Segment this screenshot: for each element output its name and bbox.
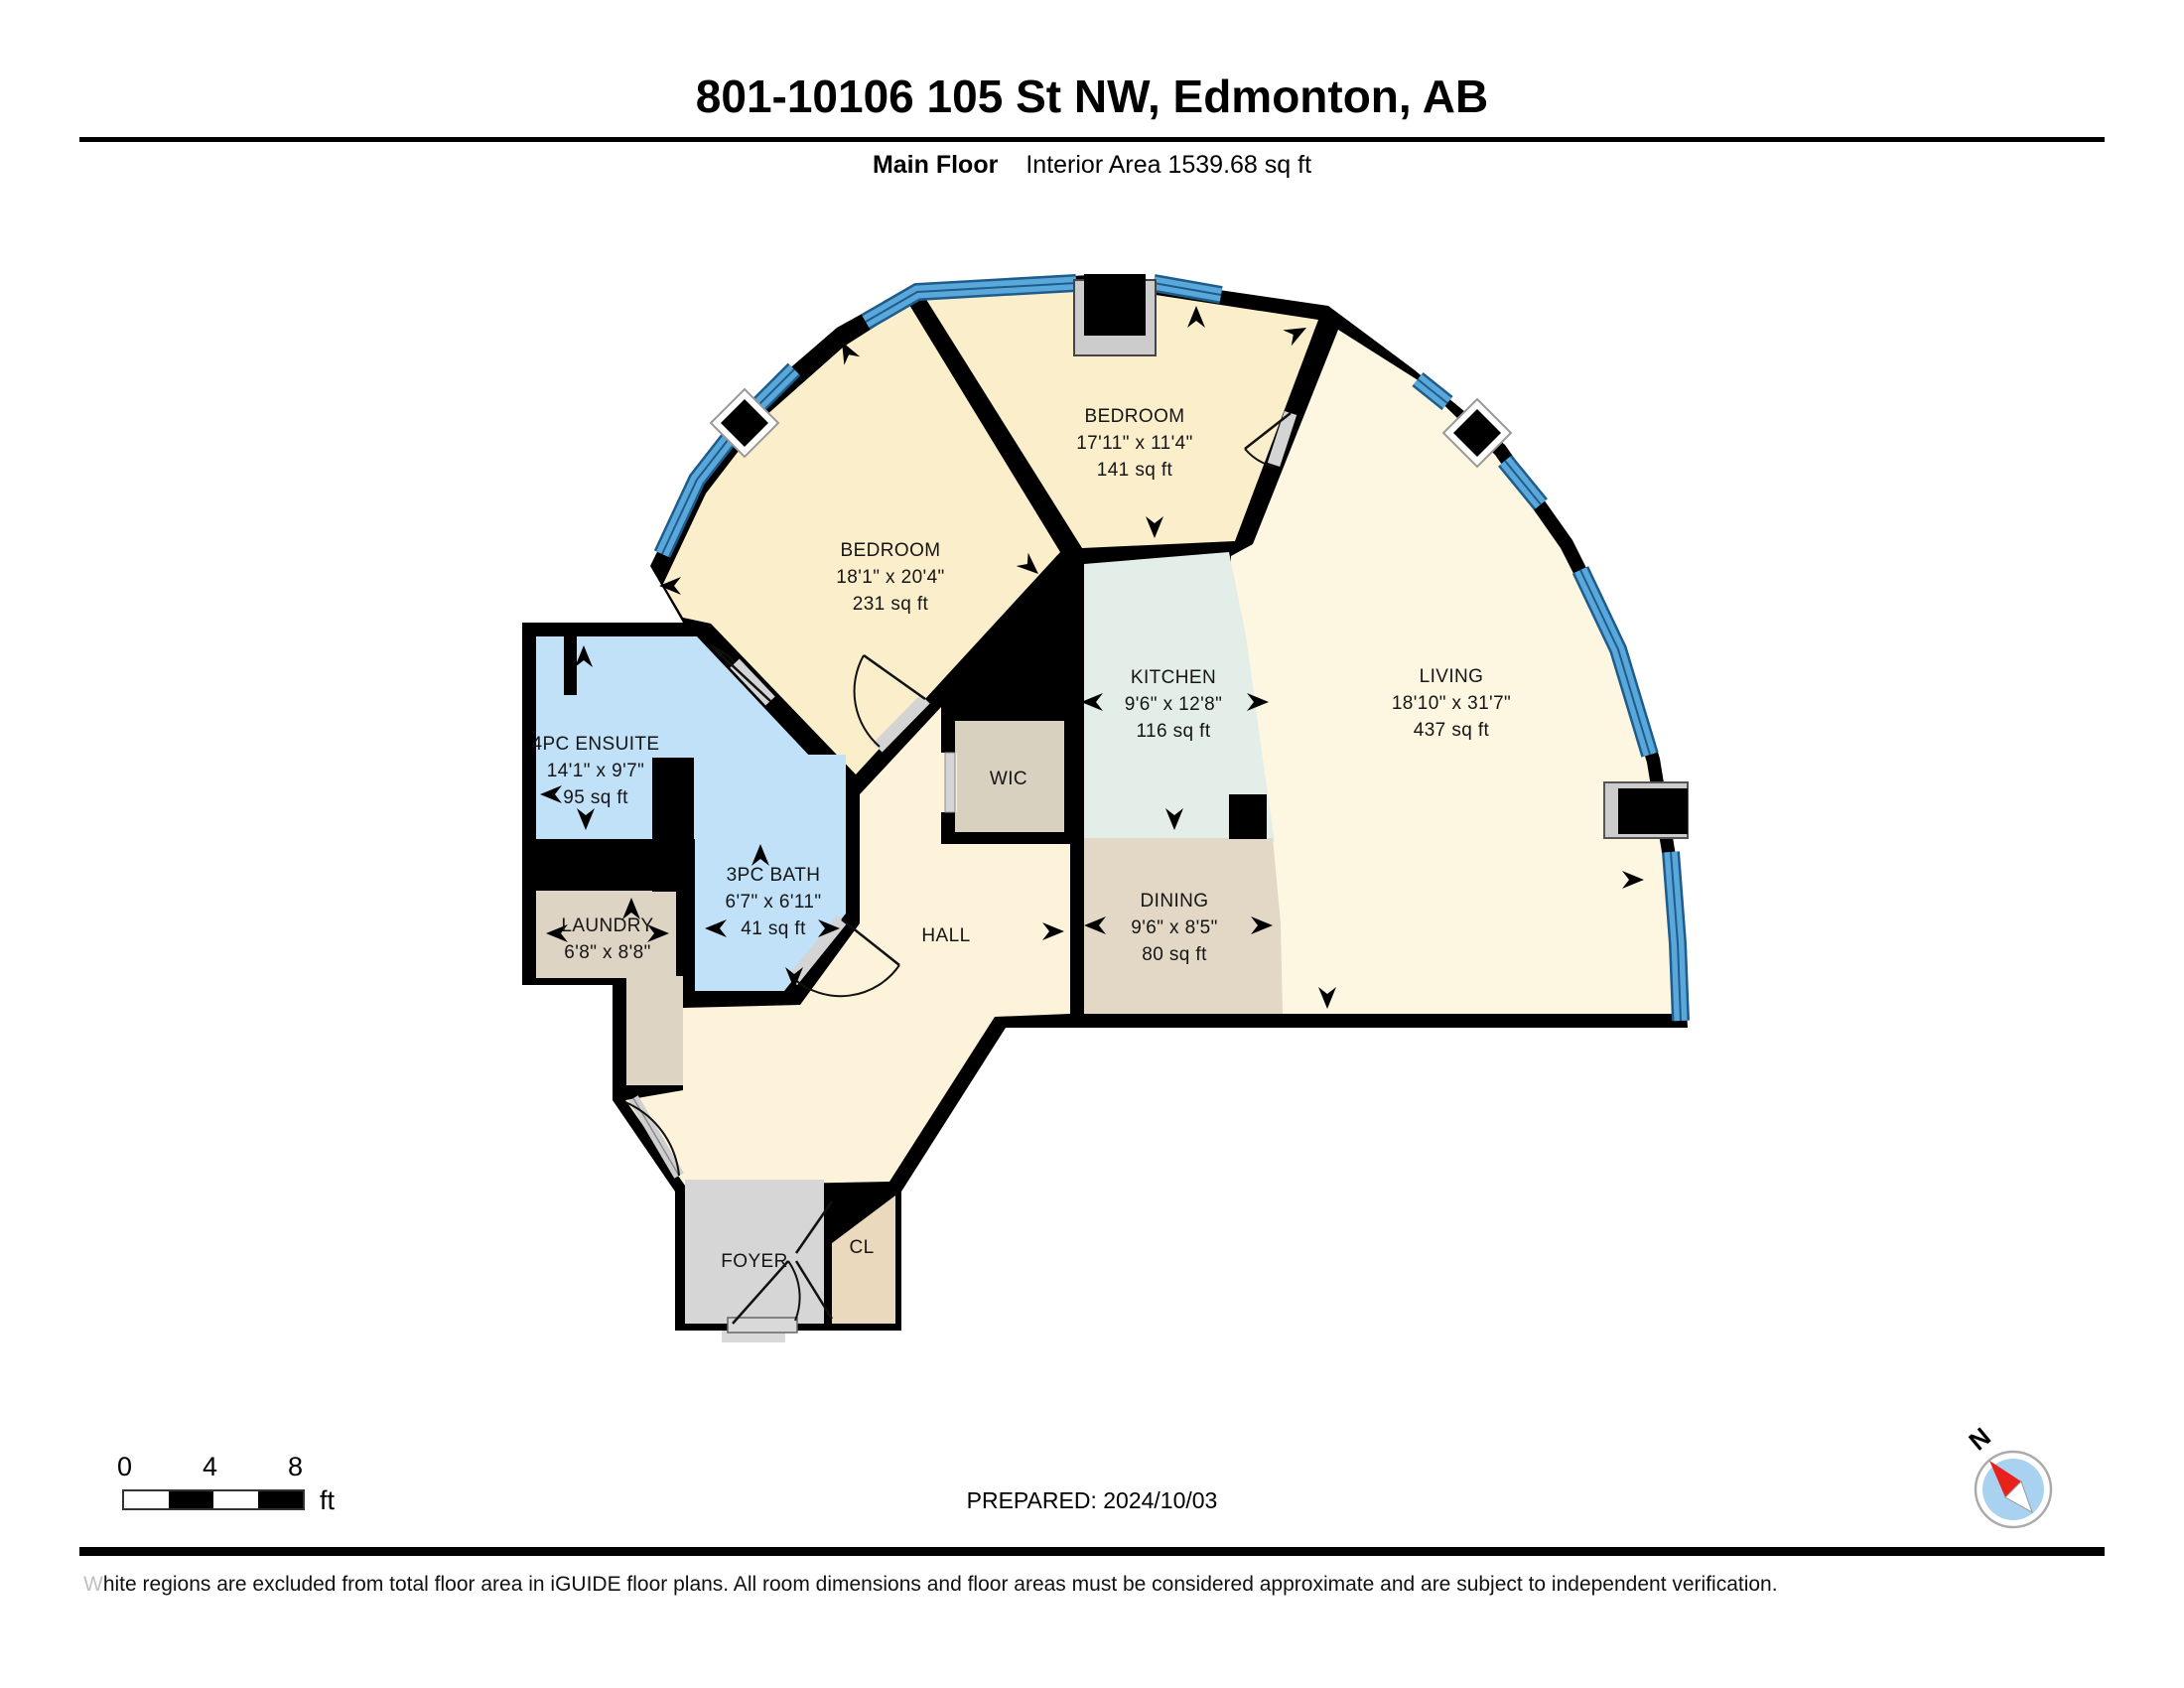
column-center bbox=[1229, 794, 1267, 839]
prepared-date: PREPARED: 2024/10/03 bbox=[0, 1487, 2184, 1514]
label-living-name: LIVING bbox=[1420, 666, 1484, 687]
label-dining-name: DINING bbox=[1141, 891, 1209, 912]
label-wic: WIC bbox=[990, 769, 1027, 789]
ensuite-wall-stub bbox=[564, 630, 577, 695]
door-sill bbox=[728, 1318, 797, 1333]
floor-plan-page: 801-10106 105 St NW, Edmonton, AB Main F… bbox=[0, 0, 2184, 1688]
label-bath-name: 3PC BATH bbox=[727, 865, 821, 886]
label-living-area: 437 sq ft bbox=[1414, 720, 1490, 741]
scale-tick-0: 0 bbox=[117, 1452, 132, 1482]
laundry-corridor bbox=[626, 976, 683, 1085]
label-bedroom-left-dims: 18'1" x 20'4" bbox=[836, 567, 944, 588]
label-dining-dims: 9'6" x 8'5" bbox=[1131, 917, 1217, 938]
label-ensuite-dims: 14'1" x 9'7" bbox=[547, 761, 644, 781]
scale-tick-4: 4 bbox=[203, 1452, 217, 1482]
label-bedroom-top-dims: 17'11" x 11'4" bbox=[1076, 433, 1193, 454]
label-closet: CL bbox=[849, 1237, 874, 1258]
label-bath-area: 41 sq ft bbox=[741, 918, 806, 939]
label-living-dims: 18'10" x 31'7" bbox=[1392, 693, 1511, 714]
label-hall: HALL bbox=[921, 925, 970, 946]
compass-north-label: N bbox=[1963, 1422, 1996, 1457]
label-kitchen-name: KITCHEN bbox=[1131, 667, 1216, 688]
column-right-wall bbox=[1604, 782, 1688, 838]
label-dining-area: 80 sq ft bbox=[1142, 944, 1207, 965]
label-bedroom-left-name: BEDROOM bbox=[841, 540, 941, 561]
floor-plan-drawing: BEDROOM 18'1" x 20'4" 231 sq ft BEDROOM … bbox=[0, 0, 2184, 1688]
label-bedroom-top-area: 141 sq ft bbox=[1097, 460, 1173, 481]
door-sill bbox=[945, 753, 955, 812]
ensuite-wall-block bbox=[652, 758, 694, 892]
label-foyer: FOYER bbox=[721, 1251, 787, 1272]
disclaimer-text: White regions are excluded from total fl… bbox=[83, 1573, 2105, 1597]
label-bedroom-top-name: BEDROOM bbox=[1085, 406, 1185, 427]
label-bedroom-left-area: 231 sq ft bbox=[853, 594, 929, 615]
label-ensuite-name: 4PC ENSUITE bbox=[532, 734, 660, 755]
label-bath-dims: 6'7" x 6'11" bbox=[725, 892, 821, 913]
label-ensuite-area: 95 sq ft bbox=[563, 787, 628, 808]
label-kitchen-dims: 9'6" x 12'8" bbox=[1125, 694, 1222, 715]
label-laundry-name: LAUNDRY bbox=[561, 915, 653, 936]
label-laundry-dims: 6'8" x 8'8" bbox=[564, 942, 650, 963]
chimney-column bbox=[1074, 274, 1156, 355]
compass-icon: N bbox=[1936, 1398, 2105, 1567]
footer-divider bbox=[79, 1547, 2105, 1556]
label-kitchen-area: 116 sq ft bbox=[1136, 721, 1210, 742]
scale-tick-8: 8 bbox=[288, 1452, 303, 1482]
